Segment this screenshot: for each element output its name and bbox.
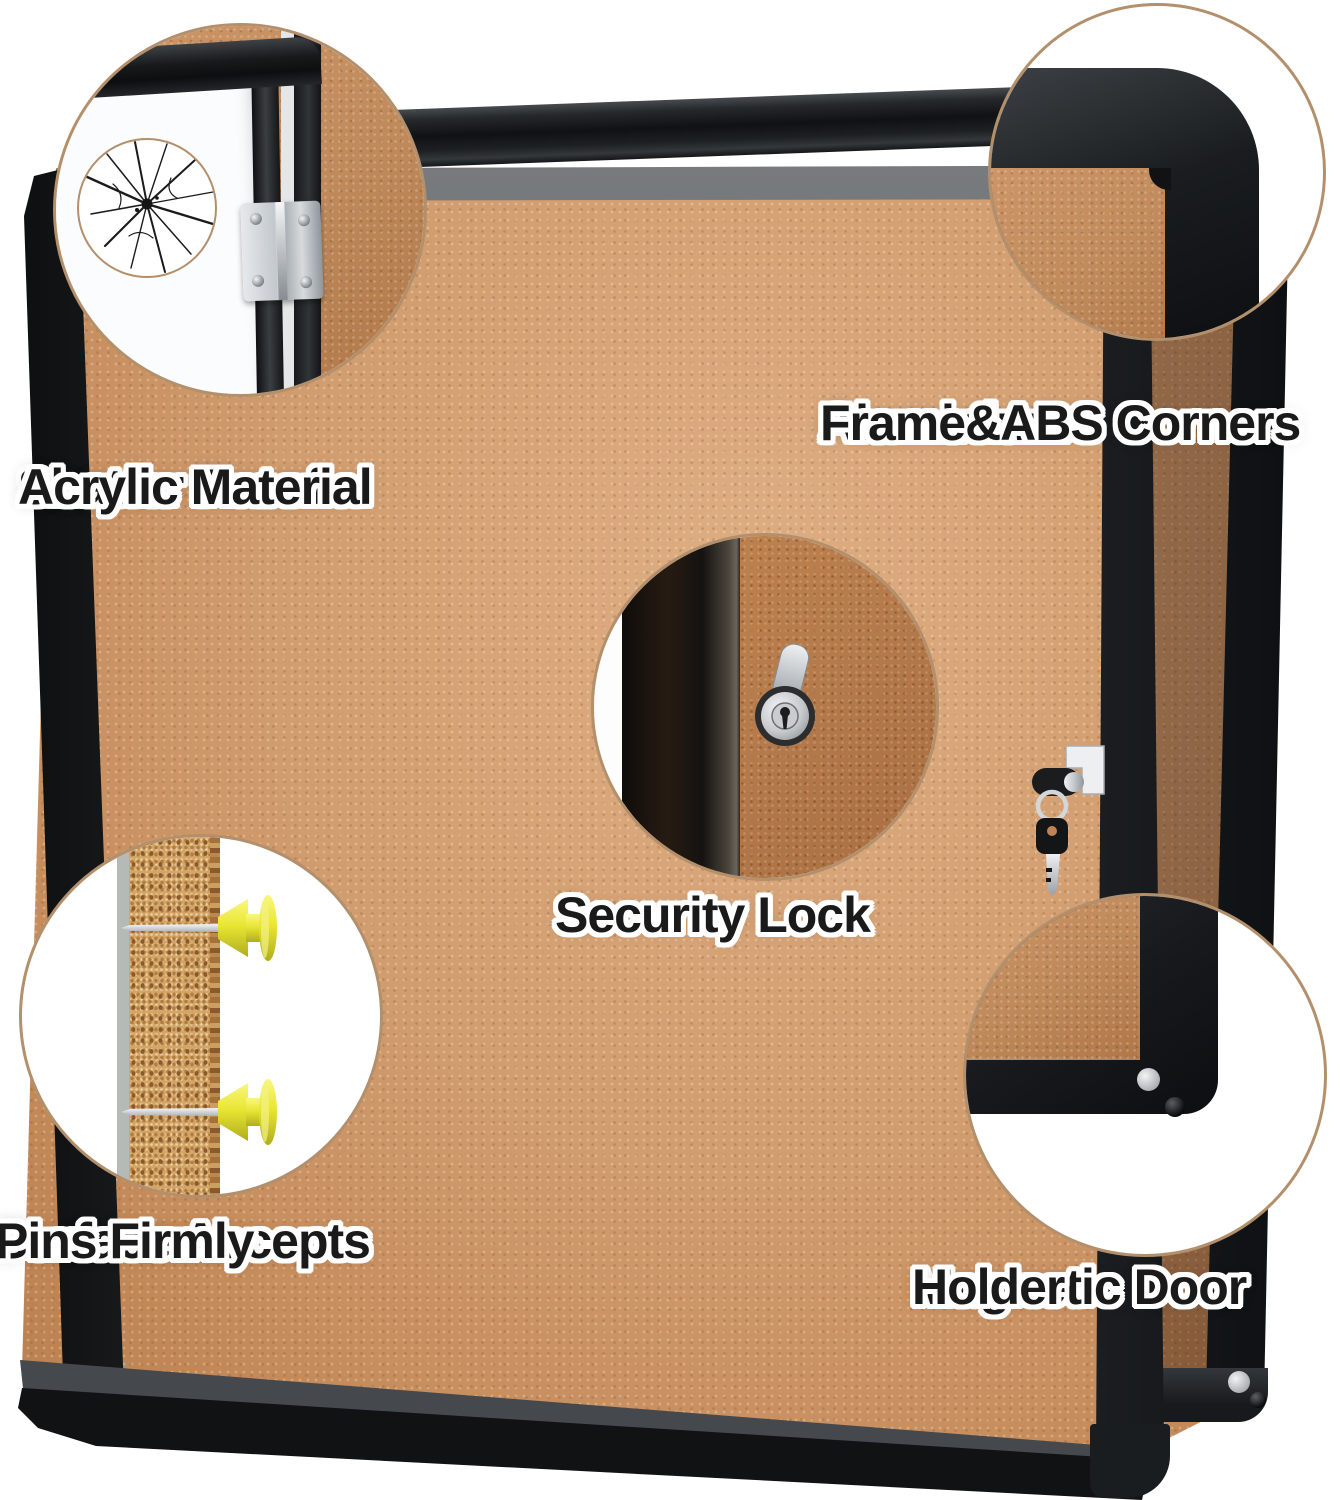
door-frame-bar (622, 536, 740, 878)
label-line: Holder (912, 1258, 1064, 1316)
label-line: Pins Firmly (0, 1212, 254, 1270)
key-notch (1046, 868, 1052, 872)
key-head-hole (1047, 826, 1057, 836)
corner-peg (1250, 1392, 1266, 1408)
label-line: Security Lock (555, 886, 870, 944)
push-pin (121, 1079, 277, 1145)
hinge-icon (240, 201, 323, 302)
hinge-screw (298, 214, 310, 226)
callout-circle-lock (591, 533, 939, 881)
callout-circle-pins (19, 834, 383, 1198)
lock-and-key-icon (1008, 742, 1112, 902)
lock-knob-cap (1064, 772, 1084, 792)
corner-peg-icon (1165, 1097, 1185, 1117)
callout-circle-corner (988, 3, 1326, 341)
key-blade (1046, 854, 1060, 896)
push-pins-icon (22, 837, 383, 1198)
key-notch (1046, 878, 1051, 882)
key-ring (1038, 792, 1066, 820)
hinge-screw (300, 276, 312, 288)
shatter-crack-inset (77, 138, 217, 278)
magnet-dot (1228, 1371, 1250, 1393)
cork-inside-corner (988, 168, 1165, 341)
security-lock-icon (739, 638, 839, 778)
door-bottom-corner (1090, 1424, 1170, 1498)
label-line: Acrylic Material (18, 458, 372, 516)
cork-inside-corner (963, 893, 1140, 1060)
label-line: Frame&ABS Corners (820, 394, 1300, 452)
acrylic-sliver (594, 536, 622, 878)
callout-circle-magnet (963, 893, 1327, 1257)
push-pin (121, 895, 277, 961)
hinge-knuckle (275, 202, 287, 300)
product-feature-image: Shatter Proof Acrylic Material Aluminium… (0, 0, 1344, 1500)
crack-lines-icon (79, 140, 215, 276)
hinge-screw (252, 275, 264, 287)
hinge-screw (250, 213, 262, 225)
callout-circle-acrylic (53, 23, 427, 397)
magnet-dot-icon (1137, 1068, 1160, 1091)
